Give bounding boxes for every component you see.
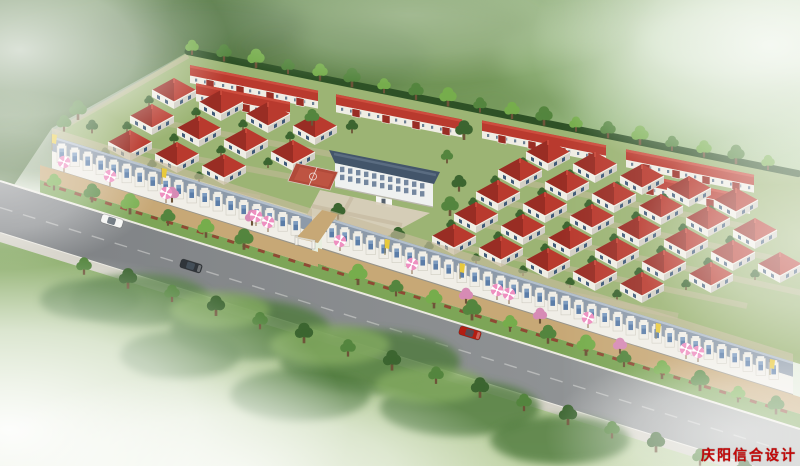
shop-unit (522, 284, 532, 303)
school-window (372, 181, 376, 186)
shop-unit (278, 212, 288, 231)
school-window (356, 170, 360, 175)
designer-watermark: 庆阳信合设计 (701, 445, 797, 465)
shop-unit (353, 231, 363, 250)
school-window (348, 168, 352, 173)
right-haze-veil (560, 0, 800, 466)
shop-unit (483, 272, 493, 291)
school-window (404, 180, 408, 185)
school-window (340, 167, 344, 172)
terrace-wing (242, 103, 250, 113)
school-window (412, 189, 416, 194)
school-window (404, 188, 408, 193)
shop-unit (291, 216, 301, 235)
shop-unit (226, 196, 236, 215)
school-window (412, 181, 416, 186)
terrace-wing (498, 135, 506, 145)
school-window (364, 180, 368, 185)
shop-unit (187, 184, 197, 203)
terrace-wing (442, 126, 450, 135)
shop-unit (444, 259, 454, 278)
shop-unit (431, 255, 441, 274)
shop-unit (392, 243, 402, 262)
shop-unit (366, 235, 376, 254)
school-window (372, 173, 376, 178)
shop-unit (548, 292, 558, 311)
terrace-wing (352, 108, 360, 118)
school-window (396, 178, 400, 183)
shop-unit (535, 288, 545, 307)
aerial-rendering-image: 庆阳信合设计 (0, 0, 800, 466)
school-window (420, 191, 424, 196)
school-window (348, 176, 352, 181)
school-window (340, 175, 344, 180)
shop-unit (418, 251, 428, 270)
school-window (388, 185, 392, 190)
shop-unit (200, 188, 210, 207)
school-window (380, 175, 384, 180)
school-window (388, 177, 392, 182)
shop-unit (470, 268, 480, 287)
school-window (396, 186, 400, 191)
school-window (420, 183, 424, 188)
rendering-svg (0, 0, 800, 466)
school-window (364, 172, 368, 177)
terrace-wing (296, 97, 304, 107)
shop-unit (213, 192, 223, 211)
terrace-wing (412, 120, 420, 129)
school-window (380, 183, 384, 188)
school-window (356, 178, 360, 183)
terrace-wing (382, 114, 390, 124)
